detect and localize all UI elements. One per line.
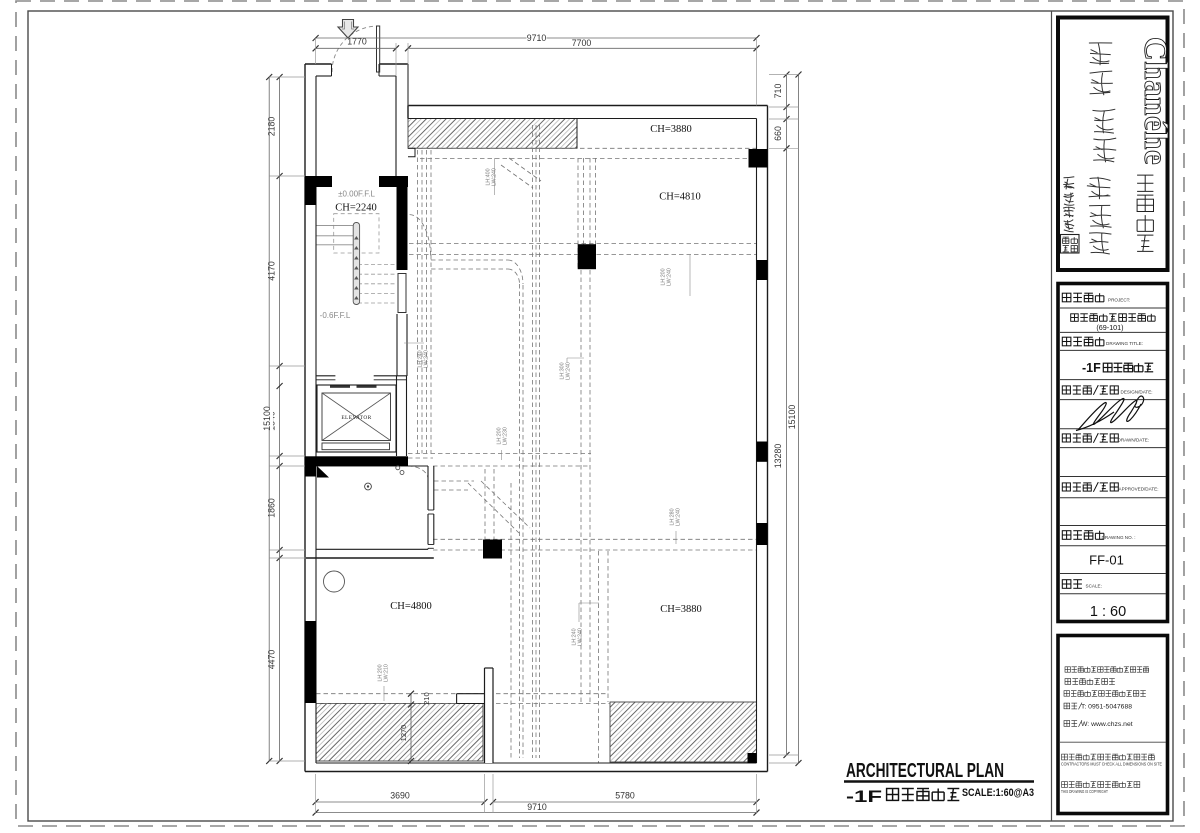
svg-text:DRAWN/DATE:: DRAWN/DATE:	[1118, 438, 1150, 443]
svg-text:-1F: -1F	[1082, 361, 1101, 375]
svg-text:1270: 1270	[399, 725, 408, 742]
svg-text:LW:230: LW:230	[503, 427, 509, 445]
svg-text:APPROVED/DATE:: APPROVED/DATE:	[1119, 487, 1159, 492]
svg-text:CH=4800: CH=4800	[390, 601, 432, 612]
svg-text:T: 0951-5047688: T: 0951-5047688	[1081, 704, 1132, 711]
svg-text:1860: 1860	[267, 498, 277, 518]
svg-text:210: 210	[422, 692, 431, 705]
svg-text:CH=3880: CH=3880	[650, 124, 692, 135]
svg-text:2180: 2180	[267, 117, 277, 137]
svg-text:W: www.chzs.net: W: www.chzs.net	[1081, 721, 1133, 728]
svg-text:DRAWING TITLE:: DRAWING TITLE:	[1106, 341, 1143, 346]
svg-text:-0.6F.F.L: -0.6F.F.L	[320, 311, 351, 320]
svg-text:CH=2240: CH=2240	[335, 203, 377, 214]
svg-text:FF-01: FF-01	[1089, 553, 1124, 568]
svg-text:1 : 60: 1 : 60	[1090, 604, 1126, 620]
svg-text:DESIGN/DATE:: DESIGN/DATE:	[1121, 390, 1153, 395]
svg-text:±0.00F.F.L: ±0.00F.F.L	[338, 190, 375, 199]
svg-text:LW:240: LW:240	[566, 362, 572, 380]
svg-text:LW:210: LW:210	[384, 664, 390, 682]
svg-text:(69-101): (69-101)	[1096, 323, 1123, 332]
svg-text:ELEVATOR: ELEVATOR	[341, 415, 371, 421]
svg-text:LW:240: LW:240	[667, 268, 673, 286]
svg-text:-1F: -1F	[846, 788, 882, 806]
svg-text:SCALE:1:60@A3: SCALE:1:60@A3	[962, 787, 1034, 799]
svg-text:LW:240: LW:240	[424, 350, 430, 368]
svg-text:7700: 7700	[572, 38, 592, 48]
svg-text:ARCHITECTURAL PLAN: ARCHITECTURAL PLAN	[846, 759, 1004, 782]
svg-text:13280: 13280	[773, 444, 783, 469]
svg-text:3690: 3690	[390, 791, 410, 801]
svg-text:THIS DRAWING IS COPYRIGHT: THIS DRAWING IS COPYRIGHT	[1061, 789, 1108, 794]
svg-text:9710: 9710	[527, 802, 547, 812]
svg-text:CH=3880: CH=3880	[660, 604, 702, 615]
svg-text:LW:240: LW:240	[578, 628, 584, 646]
svg-text:PROJECT:: PROJECT:	[1108, 298, 1130, 303]
svg-text:SCALE:: SCALE:	[1086, 584, 1102, 589]
svg-text:5780: 5780	[615, 791, 635, 801]
svg-text:LW:240: LW:240	[676, 508, 682, 526]
svg-text:15100: 15100	[787, 405, 797, 430]
svg-text:660: 660	[773, 126, 783, 141]
svg-text:15100: 15100	[262, 406, 272, 431]
svg-text:1770: 1770	[347, 37, 367, 47]
svg-text:9710: 9710	[527, 33, 547, 43]
svg-text:CH=4810: CH=4810	[659, 192, 701, 203]
svg-text:4170: 4170	[267, 261, 277, 281]
svg-text:710: 710	[773, 84, 783, 99]
svg-text:Chanéhe: Chanéhe	[1137, 37, 1173, 165]
svg-text:CONTRACTORS MUST CHECK ALL DIM: CONTRACTORS MUST CHECK ALL DIMENSIONS ON…	[1061, 762, 1162, 767]
svg-text:DRAWING NO. :: DRAWING NO. :	[1102, 535, 1136, 540]
svg-text:4470: 4470	[267, 650, 277, 670]
